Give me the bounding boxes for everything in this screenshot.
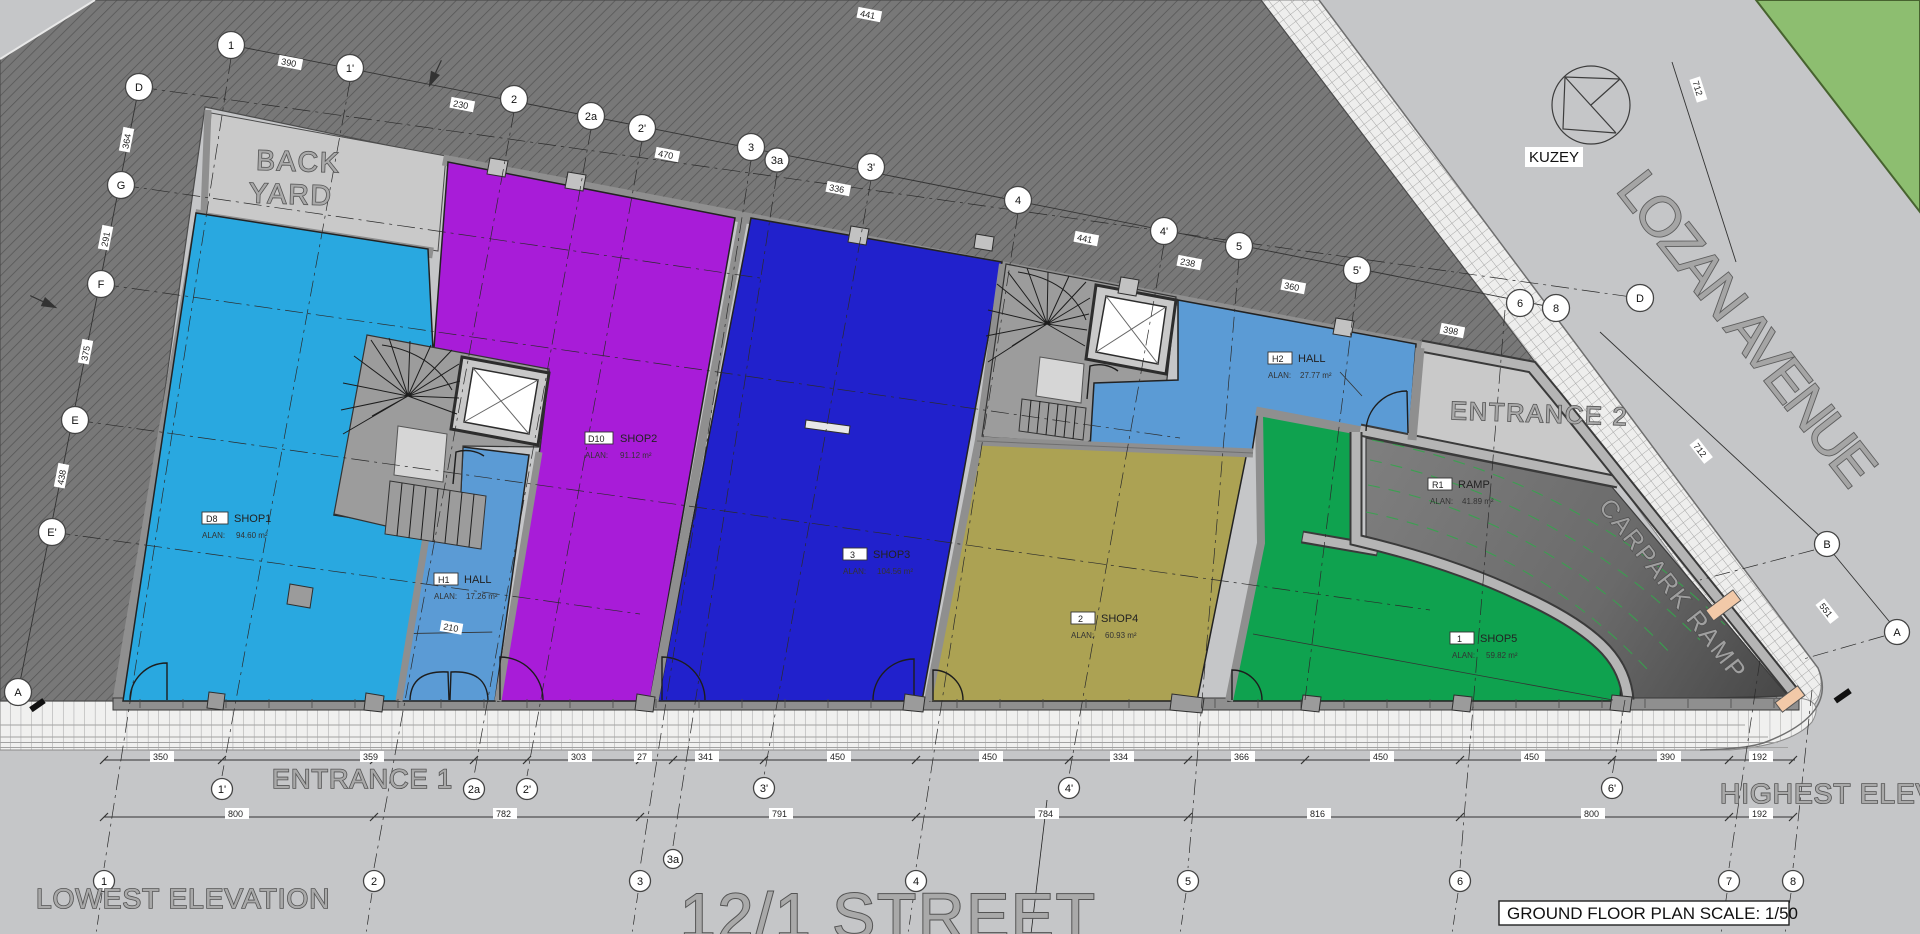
svg-text:8: 8: [1790, 876, 1796, 888]
svg-text:H1: H1: [438, 575, 450, 585]
svg-text:3': 3': [867, 162, 875, 174]
svg-text:D: D: [135, 82, 143, 94]
svg-text:2': 2': [523, 784, 531, 796]
svg-text:A: A: [1893, 627, 1901, 639]
svg-text:ALAN:: ALAN:: [1452, 651, 1475, 660]
svg-text:784: 784: [1038, 809, 1053, 819]
svg-text:4: 4: [1015, 195, 1021, 207]
svg-text:ALAN:: ALAN:: [1430, 497, 1453, 506]
svg-text:791: 791: [772, 809, 787, 819]
svg-text:6: 6: [1517, 298, 1523, 310]
svg-text:59.82 m²: 59.82 m²: [1486, 651, 1518, 660]
svg-text:91.12 m²: 91.12 m²: [620, 451, 652, 460]
svg-text:450: 450: [830, 752, 845, 762]
svg-text:HIGHEST ELEVATION: HIGHEST ELEVATION: [1720, 778, 1920, 809]
svg-text:GROUND FLOOR PLAN SCALE: 1/50: GROUND FLOOR PLAN SCALE: 1/50: [1507, 904, 1798, 923]
svg-text:12/1 STREET: 12/1 STREET: [680, 880, 1097, 934]
svg-text:G: G: [117, 180, 126, 192]
svg-text:94.60 m²: 94.60 m²: [236, 531, 268, 540]
svg-text:HALL: HALL: [464, 574, 492, 586]
svg-text:R1: R1: [1432, 480, 1444, 490]
svg-text:E': E': [47, 527, 56, 539]
svg-text:350: 350: [153, 752, 168, 762]
svg-text:6: 6: [1457, 876, 1463, 888]
svg-text:800: 800: [1584, 809, 1599, 819]
svg-text:ENTRANCE 1: ENTRANCE 1: [272, 764, 453, 794]
svg-text:3a: 3a: [667, 854, 680, 866]
svg-text:450: 450: [1373, 752, 1388, 762]
svg-text:D10: D10: [588, 434, 605, 444]
svg-text:816: 816: [1310, 809, 1325, 819]
svg-text:ALAN:: ALAN:: [843, 567, 866, 576]
svg-text:5: 5: [1236, 241, 1242, 253]
svg-text:ALAN:: ALAN:: [1071, 631, 1094, 640]
svg-text:3': 3': [760, 783, 768, 795]
svg-text:1: 1: [1457, 634, 1462, 644]
svg-text:2: 2: [371, 876, 377, 888]
svg-text:2a: 2a: [585, 111, 598, 123]
svg-text:ALAN:: ALAN:: [434, 592, 457, 601]
svg-text:6': 6': [1608, 783, 1616, 795]
svg-text:782: 782: [496, 809, 511, 819]
svg-text:1': 1': [346, 63, 354, 75]
svg-text:3: 3: [637, 876, 643, 888]
svg-text:4': 4': [1065, 783, 1073, 795]
svg-text:334: 334: [1113, 752, 1128, 762]
svg-text:SHOP2: SHOP2: [620, 433, 657, 445]
svg-text:5': 5': [1353, 265, 1361, 277]
svg-text:17.26 m²: 17.26 m²: [466, 592, 498, 601]
svg-text:303: 303: [571, 752, 586, 762]
svg-text:A: A: [14, 687, 22, 699]
svg-text:359: 359: [363, 752, 378, 762]
svg-text:1: 1: [228, 40, 234, 52]
svg-text:192: 192: [1752, 752, 1767, 762]
svg-text:8: 8: [1553, 303, 1559, 315]
svg-text:104.56 m²: 104.56 m²: [877, 567, 913, 576]
svg-text:41.89 m²: 41.89 m²: [1462, 497, 1494, 506]
svg-text:3: 3: [850, 550, 855, 560]
svg-text:HALL: HALL: [1298, 353, 1326, 365]
svg-text:3a: 3a: [771, 155, 784, 167]
svg-text:27: 27: [637, 752, 647, 762]
svg-text:SHOP4: SHOP4: [1101, 613, 1138, 625]
svg-text:800: 800: [228, 809, 243, 819]
svg-text:192: 192: [1752, 809, 1767, 819]
svg-text:2: 2: [1078, 614, 1083, 624]
svg-text:366: 366: [1234, 752, 1249, 762]
svg-text:BACK: BACK: [256, 144, 341, 178]
svg-text:7: 7: [1726, 876, 1732, 888]
svg-text:D8: D8: [206, 514, 218, 524]
svg-text:1': 1': [218, 784, 226, 796]
svg-text:60.93 m²: 60.93 m²: [1105, 631, 1137, 640]
svg-text:3: 3: [748, 142, 754, 154]
svg-text:2': 2': [638, 123, 646, 135]
svg-text:SHOP3: SHOP3: [873, 549, 910, 561]
svg-text:RAMP: RAMP: [1458, 479, 1490, 491]
svg-text:YARD: YARD: [249, 177, 334, 211]
svg-text:H2: H2: [1272, 354, 1284, 364]
svg-text:LOWEST ELEVATION: LOWEST ELEVATION: [36, 883, 331, 914]
svg-text:450: 450: [982, 752, 997, 762]
svg-text:B: B: [1823, 539, 1830, 551]
svg-text:E: E: [71, 415, 78, 427]
svg-text:27.77 m²: 27.77 m²: [1300, 371, 1332, 380]
svg-text:2: 2: [511, 94, 517, 106]
svg-text:ALAN:: ALAN:: [202, 531, 225, 540]
svg-text:F: F: [98, 279, 105, 291]
svg-text:4': 4': [1160, 226, 1168, 238]
svg-text:ALAN:: ALAN:: [585, 451, 608, 460]
svg-text:ALAN:: ALAN:: [1268, 371, 1291, 380]
svg-text:D: D: [1636, 293, 1644, 305]
svg-text:450: 450: [1524, 752, 1539, 762]
svg-text:341: 341: [698, 752, 713, 762]
svg-text:390: 390: [1660, 752, 1675, 762]
svg-text:KUZEY: KUZEY: [1529, 149, 1579, 166]
svg-text:SHOP1: SHOP1: [234, 513, 271, 525]
svg-text:2a: 2a: [468, 784, 481, 796]
svg-text:5: 5: [1185, 876, 1191, 888]
svg-text:SHOP5: SHOP5: [1480, 633, 1517, 645]
